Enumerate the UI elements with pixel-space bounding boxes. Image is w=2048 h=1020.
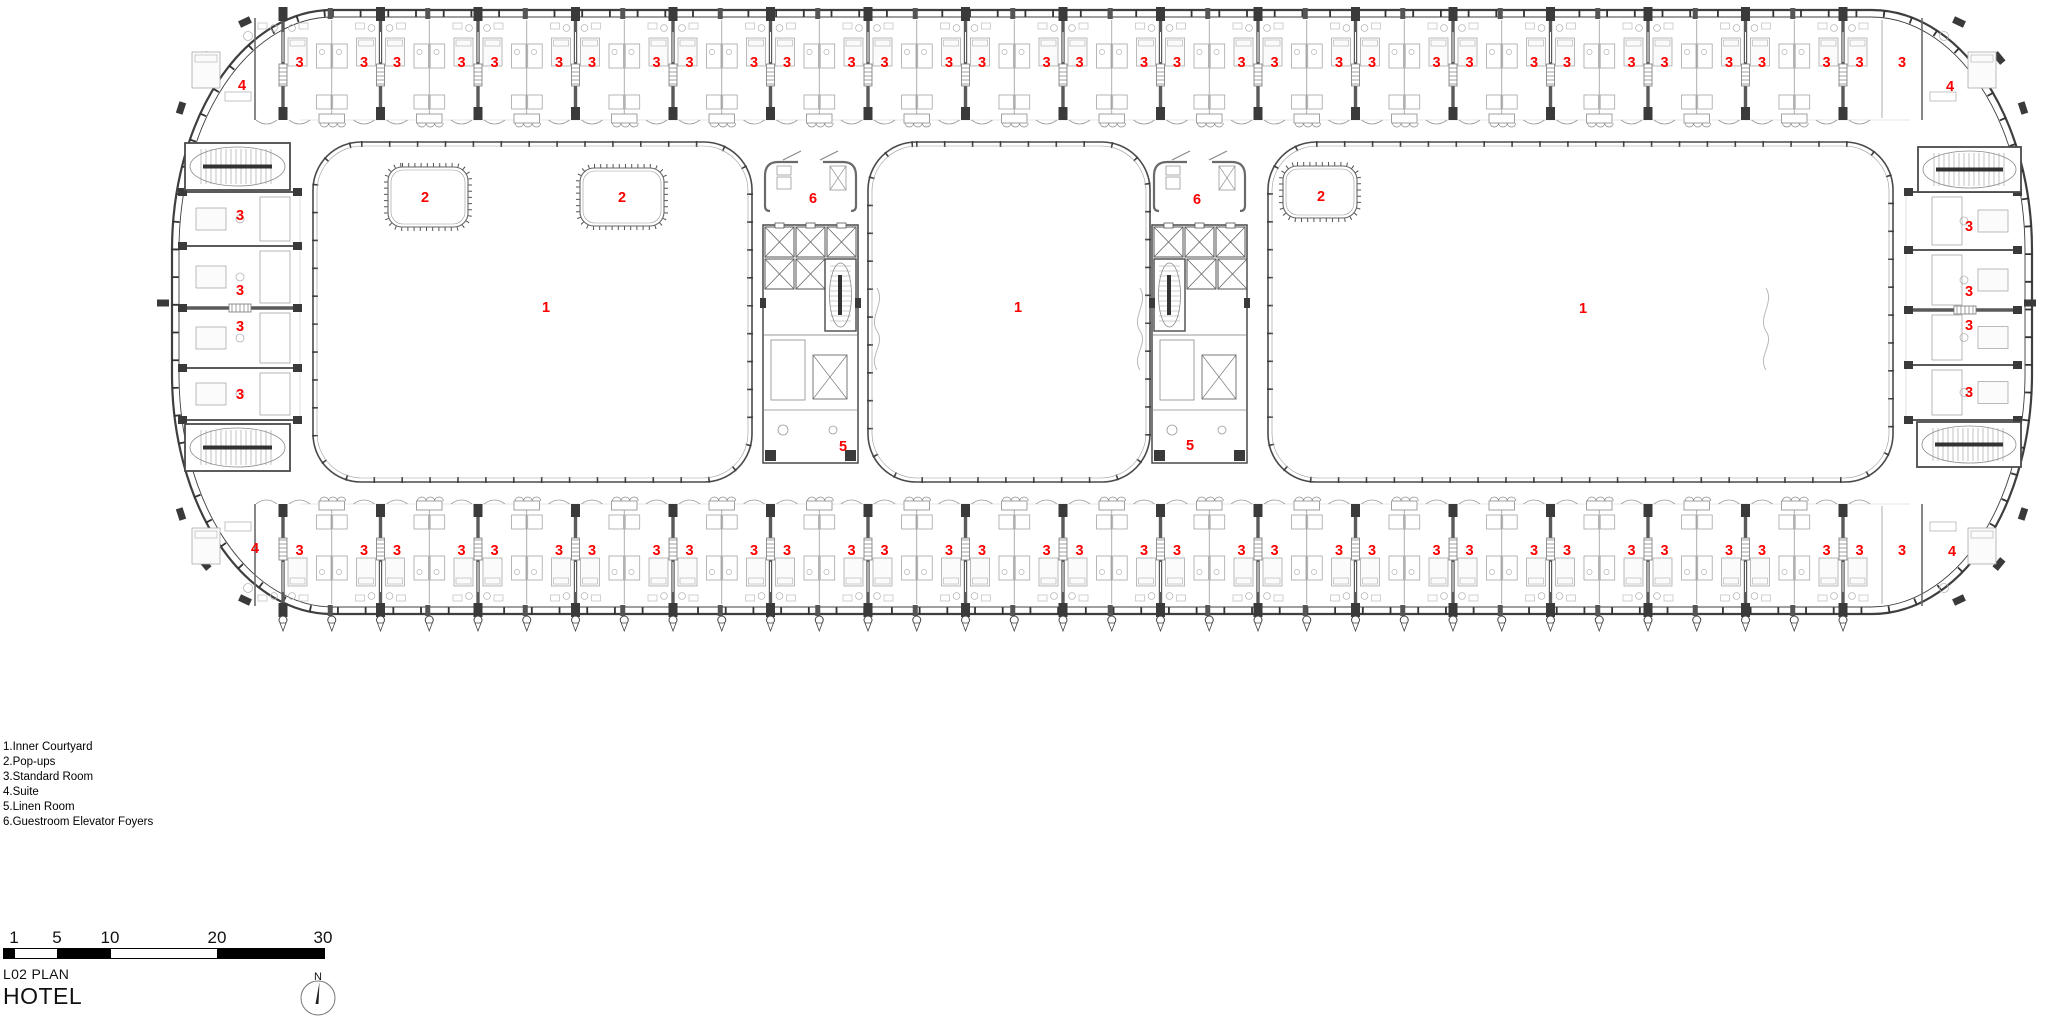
courtyard-1 (313, 142, 752, 482)
standard-room-label: 3 (1432, 543, 1440, 559)
standard-room-label: 3 (1965, 385, 1973, 401)
standard-room-label: 3 (1965, 284, 1973, 300)
standard-room-label: 3 (236, 319, 244, 335)
standard-room-label: 3 (1725, 55, 1733, 71)
standard-room-label: 3 (652, 55, 660, 71)
linen-room-label: 5 (839, 439, 847, 455)
standard-room-label: 3 (393, 55, 401, 71)
standard-room-label: 3 (1530, 543, 1538, 559)
standard-room-label: 3 (1660, 55, 1668, 71)
standard-room-label: 3 (295, 55, 303, 71)
popup-label: 2 (421, 190, 429, 206)
project-title: HOTEL (3, 983, 82, 1010)
standard-room-label: 3 (236, 387, 244, 403)
standard-room-label: 3 (457, 543, 465, 559)
standard-room-label: 3 (360, 55, 368, 71)
standard-room-label: 3 (1237, 55, 1245, 71)
title-block: L02 PLAN HOTEL (3, 966, 82, 1010)
standard-room-label: 3 (1758, 543, 1766, 559)
standard-room-label: 3 (1563, 543, 1571, 559)
standard-room-label: 3 (750, 55, 758, 71)
stair-core-2 (185, 424, 290, 471)
standard-room-label: 3 (847, 543, 855, 559)
standard-room-label: 3 (236, 208, 244, 224)
standard-room-label: 3 (750, 543, 758, 559)
standard-room-label: 3 (1368, 55, 1376, 71)
standard-room-label: 3 (1335, 55, 1343, 71)
standard-room-label: 3 (555, 543, 563, 559)
standard-room-label: 3 (236, 283, 244, 299)
scale-segment (57, 949, 110, 958)
floor-plan-drawing: 3333333333333333333333333333333333443333… (0, 0, 2048, 1020)
standard-room-label: 3 (457, 55, 465, 71)
standard-room-label: 3 (1140, 543, 1148, 559)
standard-room-label: 3 (978, 55, 986, 71)
standard-room-label: 3 (945, 55, 953, 71)
suite-label: 4 (251, 541, 259, 557)
legend-item-inner-courtyard: 1.Inner Courtyard (3, 740, 153, 755)
standard-room-label: 3 (945, 543, 953, 559)
linen-room-label: 5 (1186, 438, 1194, 454)
suite-label: 4 (238, 78, 246, 94)
standard-room-label: 3 (1822, 543, 1830, 559)
standard-room-label: 3 (1042, 543, 1050, 559)
standard-room-label: 3 (1368, 543, 1376, 559)
standard-room-label: 3 (393, 543, 401, 559)
standard-room-label: 3 (783, 543, 791, 559)
standard-room-label: 3 (1822, 55, 1830, 71)
standard-room-label: 3 (1042, 55, 1050, 71)
standard-room-label: 3 (880, 543, 888, 559)
standard-room-label: 3 (588, 55, 596, 71)
standard-room-label: 3 (1758, 55, 1766, 71)
suite-label: 4 (1946, 79, 1954, 95)
standard-room-label: 3 (360, 543, 368, 559)
scale-segment (15, 949, 58, 958)
standard-room-label: 3 (555, 55, 563, 71)
standard-room-label: 3 (1432, 55, 1440, 71)
standard-room-label: 3 (1270, 543, 1278, 559)
standard-room-label: 3 (1075, 55, 1083, 71)
standard-room-label: 3 (1335, 543, 1343, 559)
standard-room-label: 3 (1855, 55, 1863, 71)
stair-core-3 (1918, 147, 2021, 192)
standard-room-label: 3 (490, 543, 498, 559)
north-needle (316, 982, 320, 1004)
legend: 1.Inner Courtyard 2.Pop-ups 3.Standard R… (3, 740, 153, 830)
standard-room-label: 3 (652, 543, 660, 559)
legend-item-linen-room: 5.Linen Room (3, 800, 153, 815)
stair-core-1 (185, 143, 290, 190)
standard-room-label: 3 (1237, 543, 1245, 559)
standard-room-label: 3 (1075, 543, 1083, 559)
scale-tick-label: 10 (101, 928, 120, 948)
elevator-foyer-label: 6 (809, 191, 817, 207)
scale-bar: 1 5 10 20 30 (3, 928, 333, 962)
scale-tick-label: 1 (9, 928, 18, 948)
sheet-title: L02 PLAN (3, 966, 82, 982)
scale-bar-numbers: 1 5 10 20 30 (3, 928, 333, 946)
courtyard-label: 1 (542, 300, 550, 316)
standard-room-label: 3 (847, 55, 855, 71)
legend-item-standard-room: 3.Standard Room (3, 770, 153, 785)
scale-segment (4, 949, 15, 958)
courtyard-label: 1 (1579, 301, 1587, 317)
standard-room-label: 3 (1627, 543, 1635, 559)
standard-room-label: 3 (1965, 219, 1973, 235)
scale-segment (217, 949, 324, 958)
standard-room-label: 3 (1465, 543, 1473, 559)
standard-room-label: 3 (1465, 55, 1473, 71)
standard-room-label: 3 (685, 55, 693, 71)
scale-tick-label: 30 (314, 928, 333, 948)
legend-item-elevator-foyers: 6.Guestroom Elevator Foyers (3, 815, 153, 830)
standard-room-label: 3 (1898, 55, 1906, 71)
standard-room-label: 3 (685, 543, 693, 559)
standard-room-label: 3 (1563, 55, 1571, 71)
stair-core-4 (1917, 422, 2021, 467)
standard-room-label: 3 (783, 55, 791, 71)
standard-room-label: 3 (978, 543, 986, 559)
scale-tick-label: 5 (52, 928, 61, 948)
standard-room-label: 3 (1173, 543, 1181, 559)
standard-room-label: 3 (1855, 543, 1863, 559)
scale-bar-graphic (3, 948, 325, 959)
standard-room-label: 3 (1898, 543, 1906, 559)
courtyard-label: 1 (1014, 300, 1022, 316)
courtyard-2 (868, 142, 1150, 482)
legend-item-suite: 4.Suite (3, 785, 153, 800)
standard-room-label: 3 (1140, 55, 1148, 71)
scale-segment (111, 949, 218, 958)
elevator-foyer-label: 6 (1193, 192, 1201, 208)
standard-room-label: 3 (1530, 55, 1538, 71)
standard-room-label: 3 (1173, 55, 1181, 71)
standard-room-label: 3 (1965, 318, 1973, 334)
popup-label: 2 (1317, 189, 1325, 205)
standard-room-label: 3 (588, 543, 596, 559)
standard-room-label: 3 (1660, 543, 1668, 559)
standard-room-label: 3 (1270, 55, 1278, 71)
standard-room-label: 3 (490, 55, 498, 71)
standard-room-label: 3 (1725, 543, 1733, 559)
suite-label: 4 (1948, 544, 1956, 560)
standard-room-label: 3 (880, 55, 888, 71)
standard-room-label: 3 (295, 543, 303, 559)
standard-room-label: 3 (1627, 55, 1635, 71)
scale-tick-label: 20 (208, 928, 227, 948)
drawing-sheet: { "colors": { "red": "#fa0000", "ink": "… (0, 0, 2048, 1020)
legend-item-popups: 2.Pop-ups (3, 755, 153, 770)
north-arrow: N (295, 966, 345, 1020)
popup-label: 2 (618, 190, 626, 206)
